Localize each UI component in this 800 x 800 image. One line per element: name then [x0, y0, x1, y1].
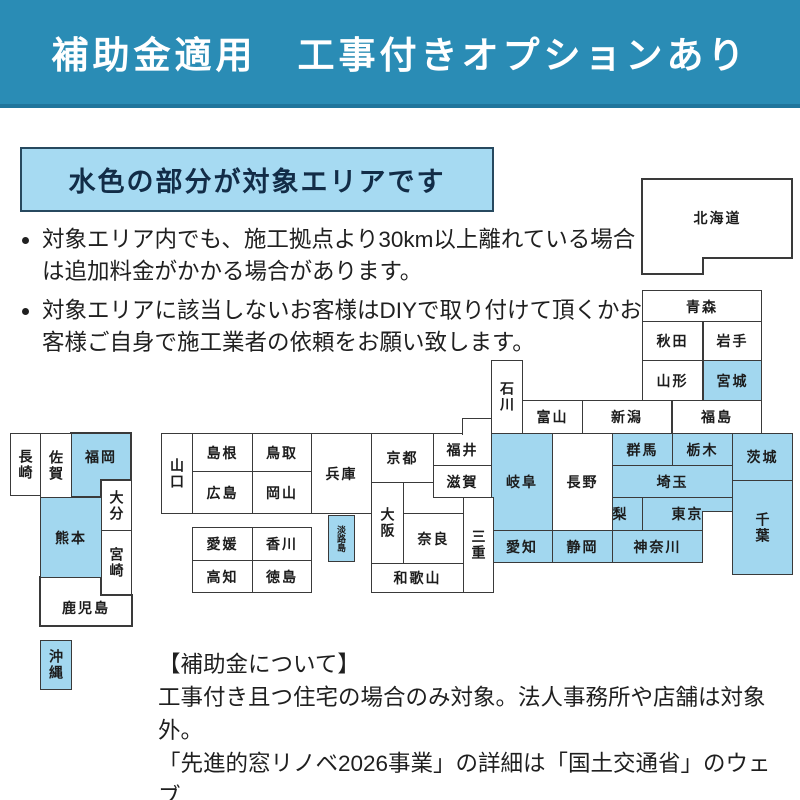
prefecture-akita: 秋田 [642, 321, 703, 361]
prefecture-okinawa: 沖縄 [40, 640, 72, 690]
prefecture-yamagata: 山形 [642, 360, 703, 401]
prefecture-chiba: 千葉 [732, 480, 793, 575]
island-awajishima: 淡路島 [328, 515, 355, 562]
prefecture-kochi: 高知 [192, 560, 253, 593]
tokyo-bay-notch [702, 511, 732, 563]
prefecture-gunma: 群馬 [612, 433, 673, 466]
prefecture-osaka: 大阪 [371, 482, 404, 564]
prefecture-toyama: 富山 [522, 400, 583, 434]
prefecture-fukushima: 福島 [672, 400, 762, 434]
prefecture-aichi: 愛知 [491, 530, 553, 563]
prefecture-miyagi: 宮城 [703, 360, 762, 401]
prefecture-fukui: 福井 [433, 433, 492, 466]
prefecture-gifu: 岐阜 [491, 433, 553, 531]
prefecture-niigata: 新潟 [582, 400, 672, 434]
prefecture-kanagawa: 神奈川 [612, 530, 703, 563]
prefecture-tochigi: 栃木 [672, 433, 733, 466]
prefecture-tottori: 鳥取 [252, 433, 312, 472]
page: 補助金適用 工事付きオプションあり 水色の部分が対象エリアです 対象エリア内でも… [0, 0, 800, 800]
footer-heading: 【補助金について】 [158, 648, 778, 681]
prefecture-mie: 三重 [463, 497, 494, 593]
prefecture-nagasaki: 長崎 [10, 433, 41, 496]
prefecture-kagawa: 香川 [252, 527, 312, 561]
footer-line: 工事付き且つ住宅の場合のみ対象。法人事務所や店舗は対象外。 [158, 681, 778, 747]
prefecture-aomori: 青森 [642, 290, 762, 323]
prefecture-ishikawa: 石川 [491, 360, 523, 434]
prefecture-kagoshima: 鹿児島 [40, 591, 132, 625]
prefecture-ehime: 愛媛 [192, 527, 253, 561]
prefecture-saga: 佐賀 [40, 433, 72, 498]
prefecture-fukuoka: 福岡 [71, 433, 131, 480]
prefecture-fukui-step [462, 418, 492, 435]
prefecture-kyoto: 京都 [371, 433, 434, 483]
prefecture-nara: 奈良 [403, 513, 464, 564]
prefecture-hiroshima: 広島 [192, 471, 253, 514]
prefecture-nagano: 長野 [552, 433, 613, 531]
prefecture-okayama: 岡山 [252, 471, 312, 514]
prefecture-yamaguchi: 山口 [161, 433, 193, 514]
prefecture-shiga: 滋賀 [433, 465, 492, 498]
prefecture-miyazaki: 宮崎 [101, 530, 132, 595]
prefecture-kumamoto: 熊本 [40, 497, 102, 578]
prefecture-shizuoka: 静岡 [552, 530, 613, 563]
prefecture-shimane: 島根 [192, 433, 253, 472]
prefecture-iwate: 岩手 [703, 321, 762, 361]
prefecture-tokushima: 徳島 [252, 560, 312, 593]
footer-note: 【補助金について】 工事付き且つ住宅の場合のみ対象。法人事務所や店舗は対象外。 … [158, 648, 778, 800]
prefecture-saitama: 埼玉 [612, 465, 733, 498]
prefecture-wakayama: 和歌山 [371, 563, 464, 593]
prefecture-hokkaido: 北海道 [642, 178, 793, 258]
prefecture-hyogo: 兵庫 [311, 433, 372, 514]
footer-line: 「先進的窓リノベ2026事業」の詳細は「国土交通省」のウェブ [158, 747, 778, 800]
prefecture-ibaraki: 茨城 [732, 433, 793, 481]
prefecture-oita: 大分 [101, 480, 132, 531]
